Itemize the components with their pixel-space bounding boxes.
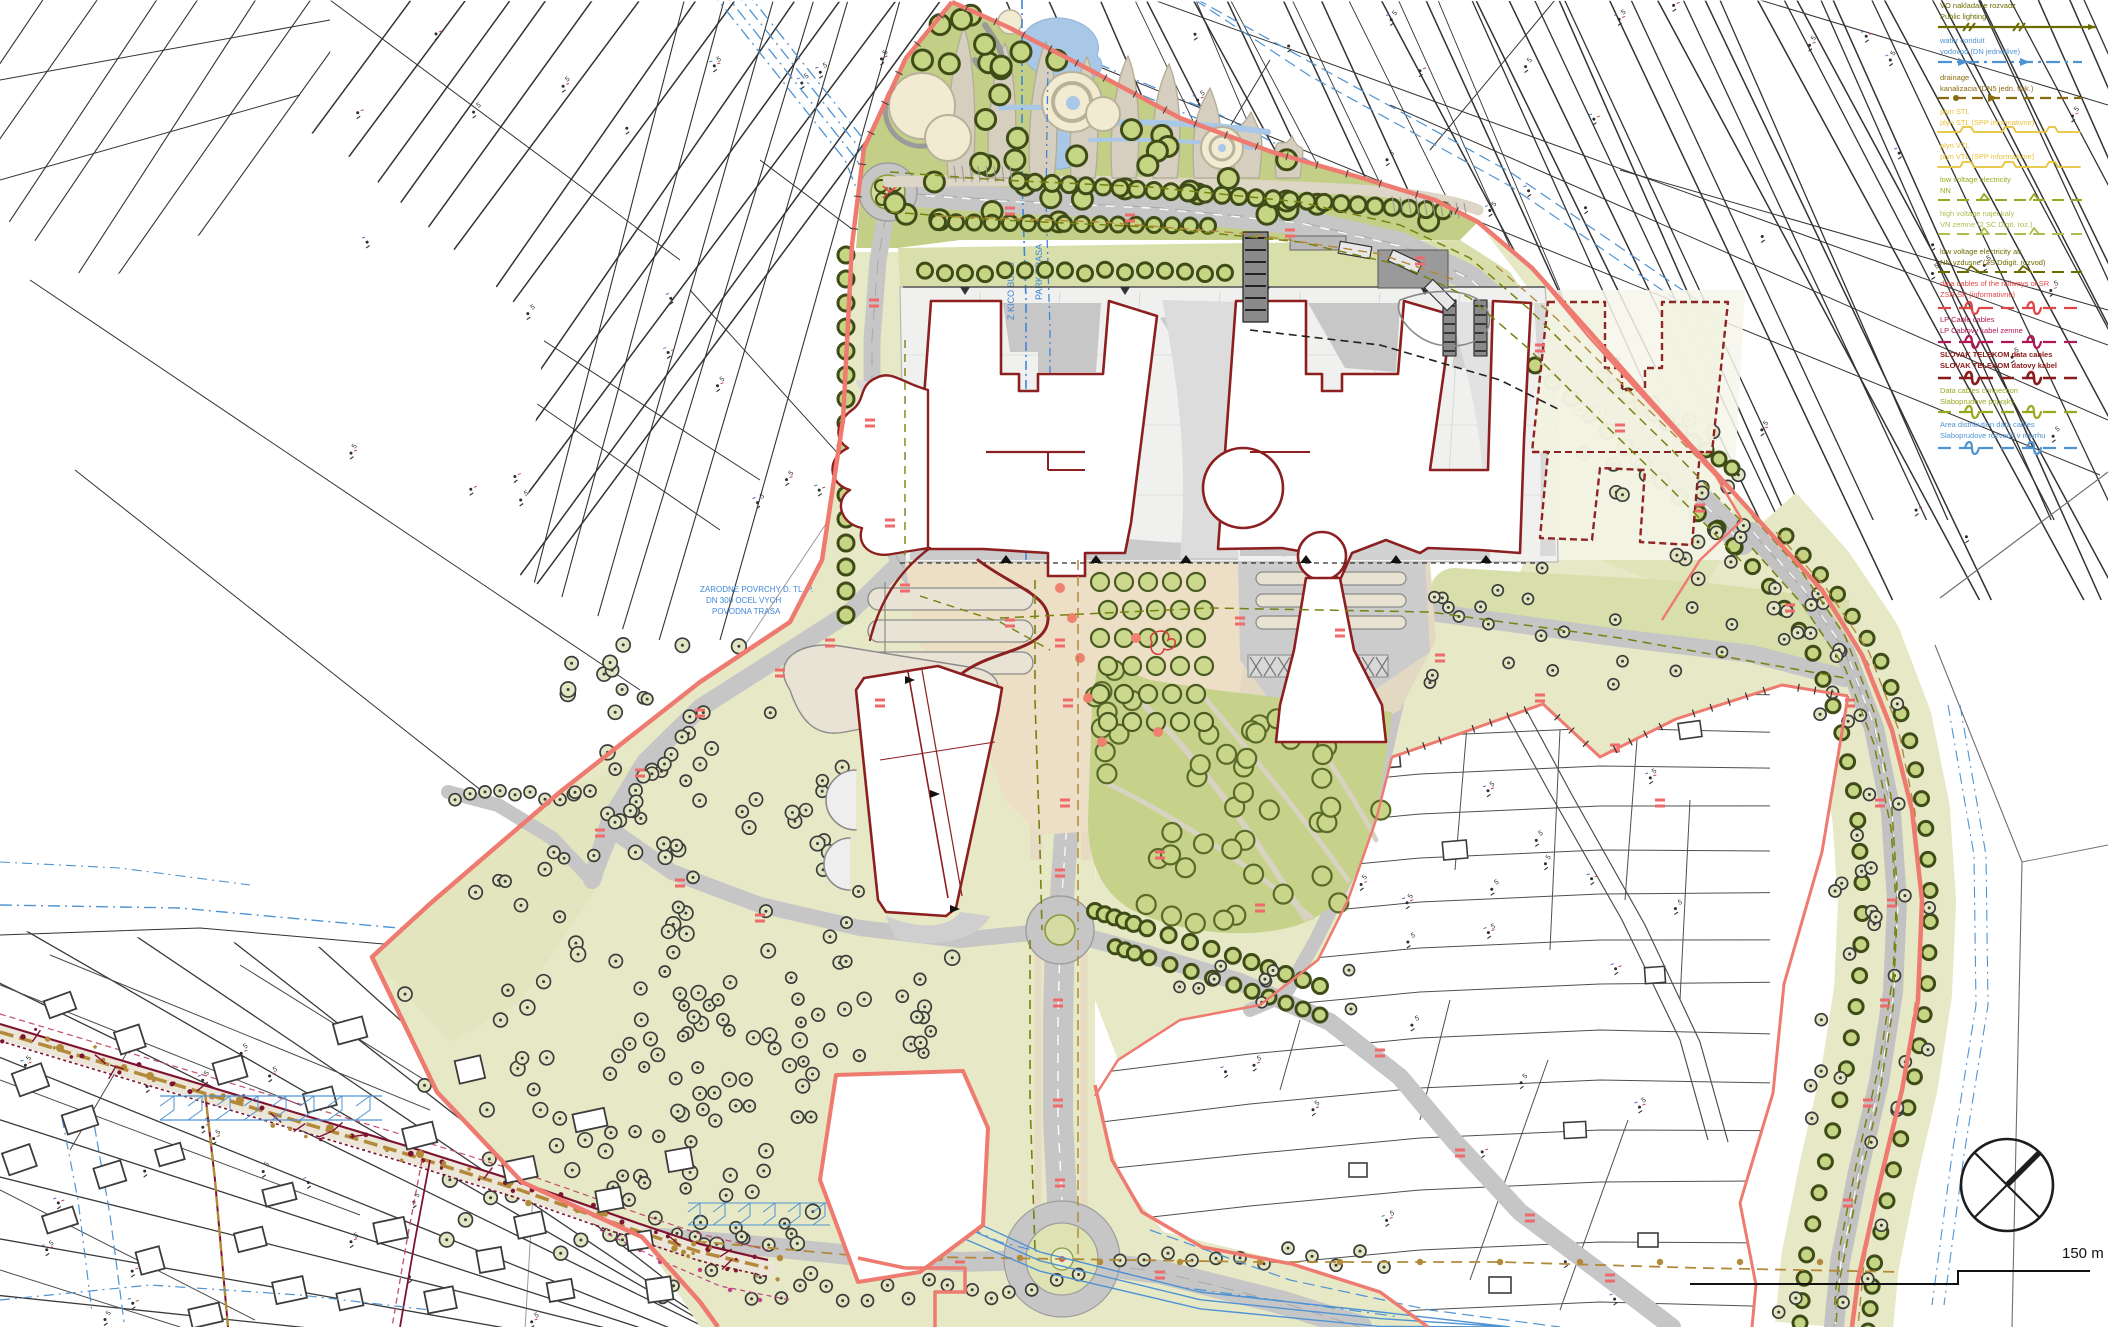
svg-text:SLOVAK TELEKOM datovy kabel: SLOVAK TELEKOM datovy kabel: [1940, 361, 2057, 370]
svg-text:NN vzdusne (ZS Ddigit. rozvod): NN vzdusne (ZS Ddigit. rozvod): [1940, 258, 2046, 267]
svg-text:ZSR SK (informativne): ZSR SK (informativne): [1940, 290, 2016, 299]
svg-text:VO nakladane rozvadz: VO nakladane rozvadz: [1940, 1, 2016, 10]
svg-text:POVODNA TRASA: POVODNA TRASA: [712, 607, 781, 616]
svg-text:Slaboprudove pripojky: Slaboprudove pripojky: [1940, 397, 2014, 406]
svg-text:Data cables connection: Data cables connection: [1940, 386, 2018, 395]
svg-text:LP Cable cables: LP Cable cables: [1940, 315, 1995, 324]
svg-text:kanalizacia (DN5 jedn. tlak.): kanalizacia (DN5 jedn. tlak.): [1940, 84, 2034, 93]
svg-text:low voltage electricity air: low voltage electricity air: [1940, 247, 2022, 256]
svg-text:water conduit: water conduit: [1939, 36, 1986, 45]
svg-text:data cables of the railways of: data cables of the railways of SR: [1940, 279, 2050, 288]
svg-text:plyn STL: plyn STL: [1940, 107, 1970, 116]
svg-text:Slaboprudove rozvody v navrhu: Slaboprudove rozvody v navrhu: [1940, 431, 2045, 440]
svg-text:NN: NN: [1940, 186, 1951, 195]
svg-text:plyn VTL: plyn VTL: [1940, 141, 1970, 150]
svg-text:Area distribution data cables: Area distribution data cables: [1940, 420, 2035, 429]
svg-text:vodovod (DN jednotlive): vodovod (DN jednotlive): [1940, 47, 2021, 56]
svg-text:SLOVAK TELEKOM data cables: SLOVAK TELEKOM data cables: [1940, 350, 2052, 359]
svg-text:DN 300 OCEL VYCH: DN 300 OCEL VYCH: [706, 596, 782, 605]
svg-text:LP Cablovy kabel zemne: LP Cablovy kabel zemne: [1940, 326, 2023, 335]
svg-text:high voltage najet kaly: high voltage najet kaly: [1940, 209, 2014, 218]
svg-text:plyn VTL (SPP informativne): plyn VTL (SPP informativne): [1940, 152, 2035, 161]
svg-text:low voltage electricity: low voltage electricity: [1940, 175, 2011, 184]
svg-text:150 m: 150 m: [2062, 1245, 2104, 1262]
svg-text:drainage: drainage: [1940, 73, 1969, 82]
svg-text:ZARODNE POVRCHY D. TL. P.: ZARODNE POVRCHY D. TL. P.: [700, 585, 813, 594]
svg-text:plyn STL (SPP informativne): plyn STL (SPP informativne): [1940, 118, 2035, 127]
svg-text:VN zemne (2 SC Digit. roz.): VN zemne (2 SC Digit. roz.): [1940, 220, 2033, 229]
svg-text:Public lighting: Public lighting: [1940, 12, 1986, 21]
